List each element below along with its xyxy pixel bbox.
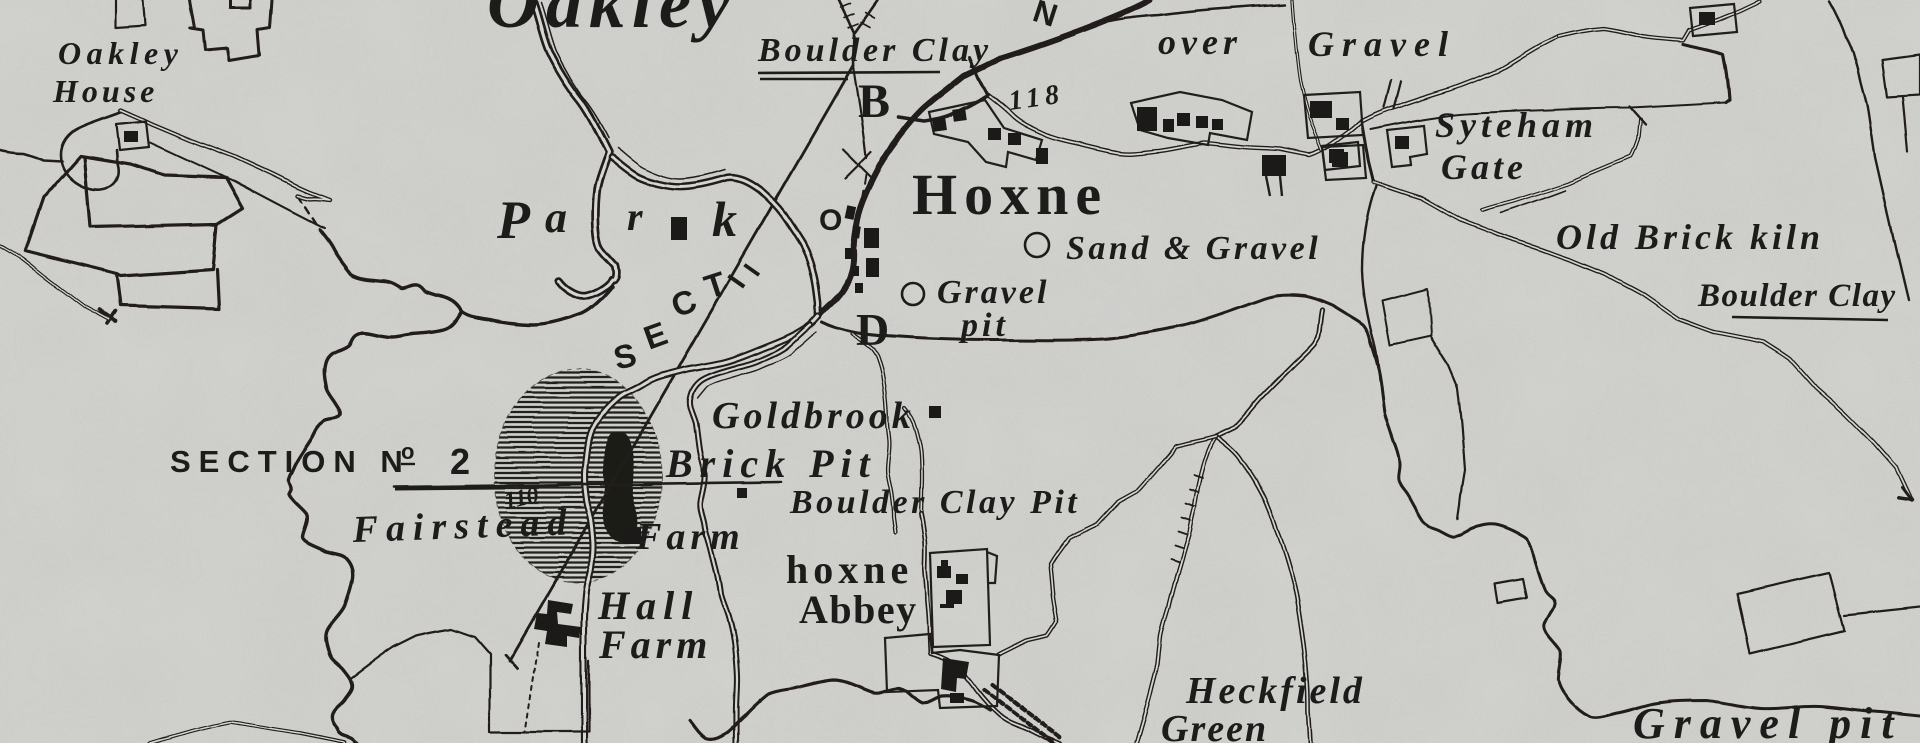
svg-text:a: a bbox=[545, 193, 567, 242]
svg-text:Goldbrook: Goldbrook bbox=[712, 395, 915, 437]
svg-text:Fairstead: Fairstead bbox=[351, 501, 575, 551]
svg-text:Boulder Clay: Boulder Clay bbox=[1697, 278, 1897, 314]
svg-text:Sand & Gravel: Sand & Gravel bbox=[1066, 230, 1321, 267]
svg-text:Old Brick kiln: Old Brick kiln bbox=[1556, 217, 1824, 257]
svg-text:Oakley: Oakley bbox=[58, 35, 183, 71]
svg-text:D: D bbox=[856, 304, 889, 355]
svg-text:Gravel pit: Gravel pit bbox=[1633, 699, 1903, 743]
svg-text:over: over bbox=[1158, 22, 1242, 62]
svg-text:Farm: Farm bbox=[635, 516, 745, 558]
svg-text:Oakley: Oakley bbox=[487, 0, 737, 43]
svg-text:Boulder Clay: Boulder Clay bbox=[757, 32, 992, 69]
svg-text:Brick Pit: Brick Pit bbox=[665, 441, 877, 486]
svg-text:Syteham: Syteham bbox=[1435, 105, 1598, 145]
svg-text:Gravel: Gravel bbox=[1308, 24, 1456, 64]
svg-text:k: k bbox=[712, 191, 737, 247]
svg-text:Gate: Gate bbox=[1441, 147, 1527, 187]
svg-text:Green: Green bbox=[1161, 708, 1268, 743]
svg-text:pit: pit bbox=[958, 307, 1009, 344]
svg-text:Gravel: Gravel bbox=[937, 274, 1049, 311]
svg-text:P: P bbox=[496, 190, 531, 250]
svg-text:Farm: Farm bbox=[598, 622, 712, 667]
svg-text:House: House bbox=[52, 73, 158, 109]
svg-text:Heckfield: Heckfield bbox=[1185, 670, 1365, 712]
svg-text:o: o bbox=[401, 439, 414, 464]
svg-text:B: B bbox=[858, 75, 890, 128]
svg-text:hoxne: hoxne bbox=[786, 547, 913, 592]
svg-text:r: r bbox=[627, 194, 643, 239]
svg-text:O: O bbox=[819, 204, 842, 237]
svg-text:SECTION N: SECTION N bbox=[170, 444, 411, 479]
svg-text:Hoxne: Hoxne bbox=[912, 162, 1108, 227]
svg-text:Boulder Clay Pit: Boulder Clay Pit bbox=[789, 484, 1080, 521]
svg-text:Abbey: Abbey bbox=[799, 587, 918, 632]
svg-text:2: 2 bbox=[450, 441, 470, 482]
